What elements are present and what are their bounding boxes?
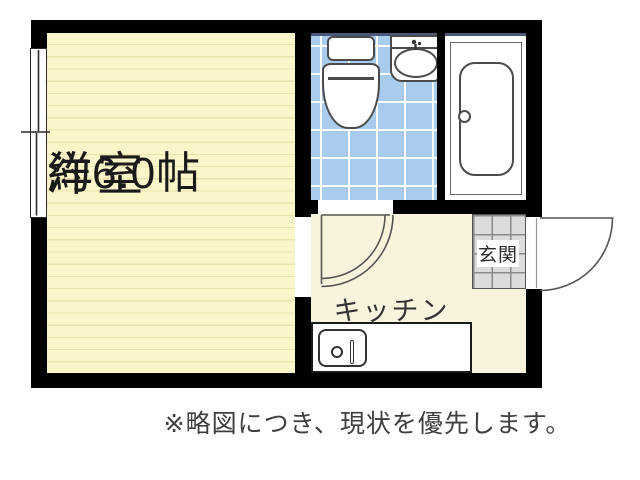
entrance-door-opening (526, 217, 542, 289)
bathroom-door-opening (318, 200, 393, 214)
floorplan-canvas: 洋室 約6.0帖 キッチン 玄関 ※略図につき、現状を優先します。 (0, 0, 640, 480)
entrance-label: 玄関 (477, 240, 519, 267)
wall-center-divider (295, 20, 311, 373)
kitchen-label: キッチン (311, 289, 472, 328)
room-kitchen-doorway (295, 217, 311, 297)
toilet-seat-line (328, 77, 374, 80)
toilet-tank-icon (327, 36, 375, 61)
bathtub-drain-icon (458, 110, 471, 123)
washbasin-icon (394, 48, 438, 78)
room-size-text: 約6.0帖 (47, 150, 201, 198)
window-symbol (30, 48, 47, 218)
kitchen-faucet-icon (350, 340, 354, 364)
kitchen-sink-drain-icon (331, 346, 343, 358)
entrance-door-swing (540, 218, 614, 291)
kitchen-sink-icon (318, 329, 367, 367)
wall-bathtub-divider (437, 33, 445, 200)
wall-bottom (31, 373, 542, 388)
wall-top (31, 20, 542, 33)
disclaimer-text: ※略図につき、現状を優先します。 (95, 404, 640, 440)
western-room-floor (47, 33, 295, 373)
